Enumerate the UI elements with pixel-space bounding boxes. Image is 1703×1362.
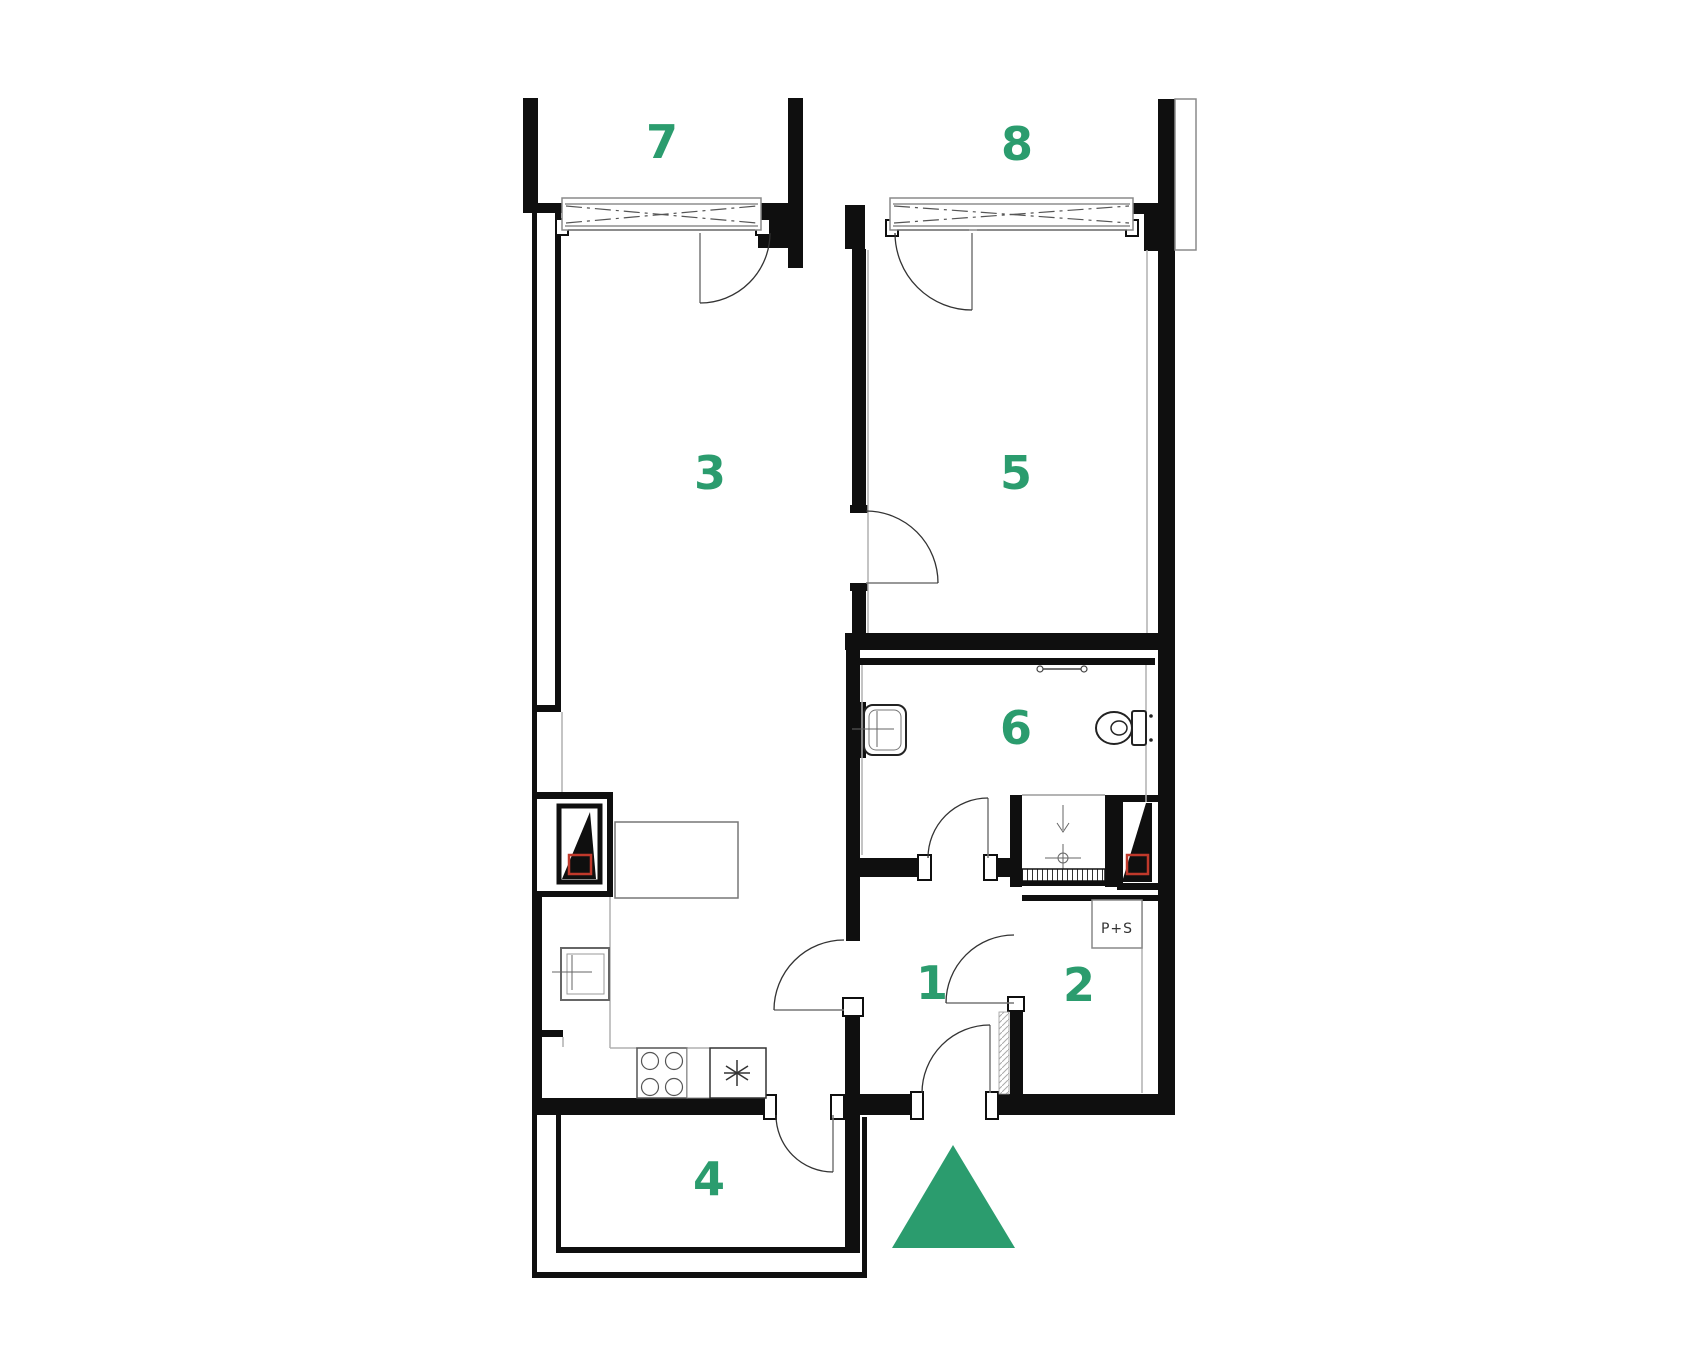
floor-plan-page: P+S 1 2 3 4 5 6 7 8 — [0, 0, 1703, 1362]
left-shaft-icon — [559, 806, 600, 882]
shower-drain-strip — [1022, 869, 1105, 881]
room-label-3: 3 — [694, 446, 726, 500]
kitchen-sink-icon — [552, 948, 609, 1000]
toilet-icon — [1096, 711, 1153, 745]
floor-plan-svg: P+S 1 2 3 4 5 6 7 8 — [0, 0, 1703, 1362]
window-balcony-8 — [890, 198, 1133, 230]
window-balcony-7 — [562, 198, 761, 230]
partition-insulation-strip — [999, 1012, 1009, 1094]
room-label-4: 4 — [693, 1152, 725, 1206]
counter-segment — [687, 1048, 710, 1098]
right-shaft-icon — [1122, 802, 1153, 883]
room-label-6: 6 — [1000, 701, 1032, 755]
room-label-2: 2 — [1063, 958, 1095, 1012]
stove-icon — [637, 1048, 687, 1098]
room-label-1: 1 — [916, 956, 948, 1010]
fridge-icon — [710, 1048, 766, 1098]
washer-dryer-label: P+S — [1101, 921, 1133, 937]
balcony-parapet-outline — [1175, 99, 1196, 250]
washer-dryer-box: P+S — [1092, 900, 1142, 948]
room-label-8: 8 — [1001, 117, 1033, 171]
room-label-5: 5 — [1000, 446, 1032, 500]
kitchen-table — [615, 822, 738, 898]
room-label-7: 7 — [646, 115, 678, 169]
